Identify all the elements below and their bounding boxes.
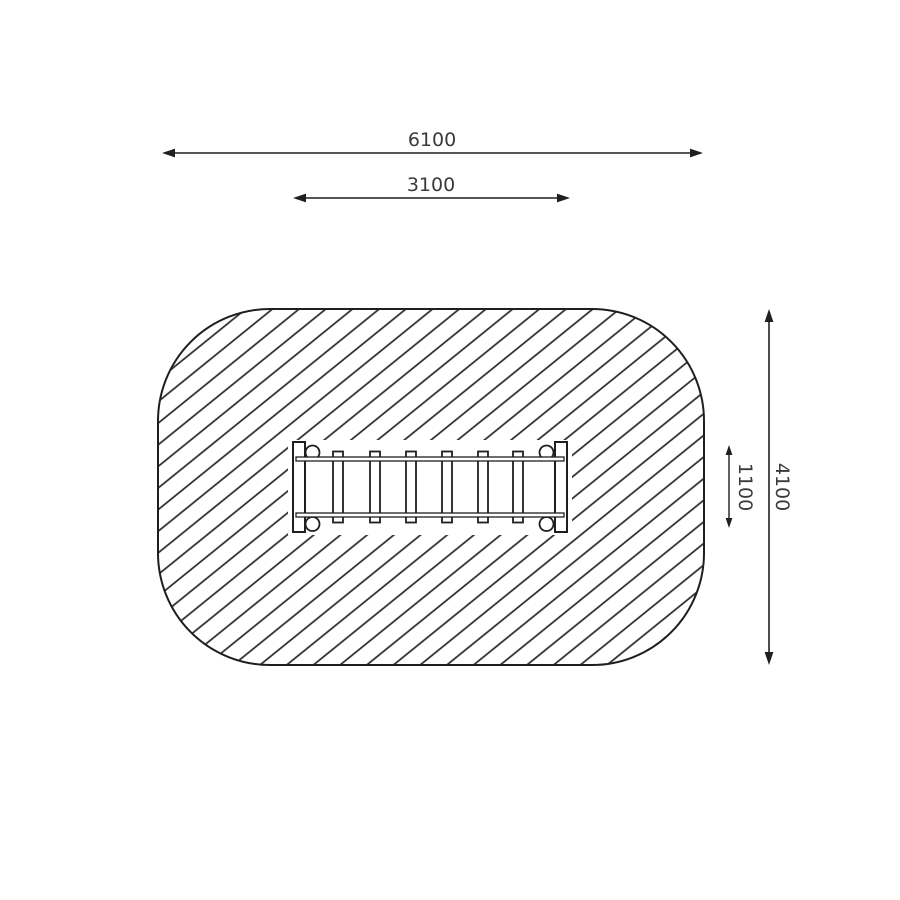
ladder-left-end-beam: [293, 442, 305, 532]
dimension-label-inner-height: 1100: [734, 463, 756, 511]
ladder-rung-5: [478, 452, 488, 523]
ladder-rung-1: [333, 452, 343, 523]
ladder-rung-3: [406, 452, 416, 523]
ladder-bottom-rail: [296, 513, 564, 517]
equipment-clearance-area: [288, 440, 572, 535]
dimension-label-inner-width: 3100: [407, 174, 455, 196]
ladder-rung-4: [442, 452, 452, 523]
ladder-rung-6: [513, 452, 523, 523]
ladder-top-rail: [296, 457, 564, 461]
dimension-label-overall-width: 6100: [408, 129, 456, 151]
dimension-label-overall-height: 4100: [771, 463, 793, 511]
technical-drawing-canvas: 6100 3100 4100 1100: [0, 0, 900, 900]
ladder-post-bottom-left: [306, 517, 320, 531]
ladder-post-bottom-right: [540, 517, 554, 531]
ladder-right-end-beam: [555, 442, 567, 532]
ladder-rung-2: [370, 452, 380, 523]
plan-view-drawing: 6100 3100 4100 1100: [0, 0, 900, 900]
